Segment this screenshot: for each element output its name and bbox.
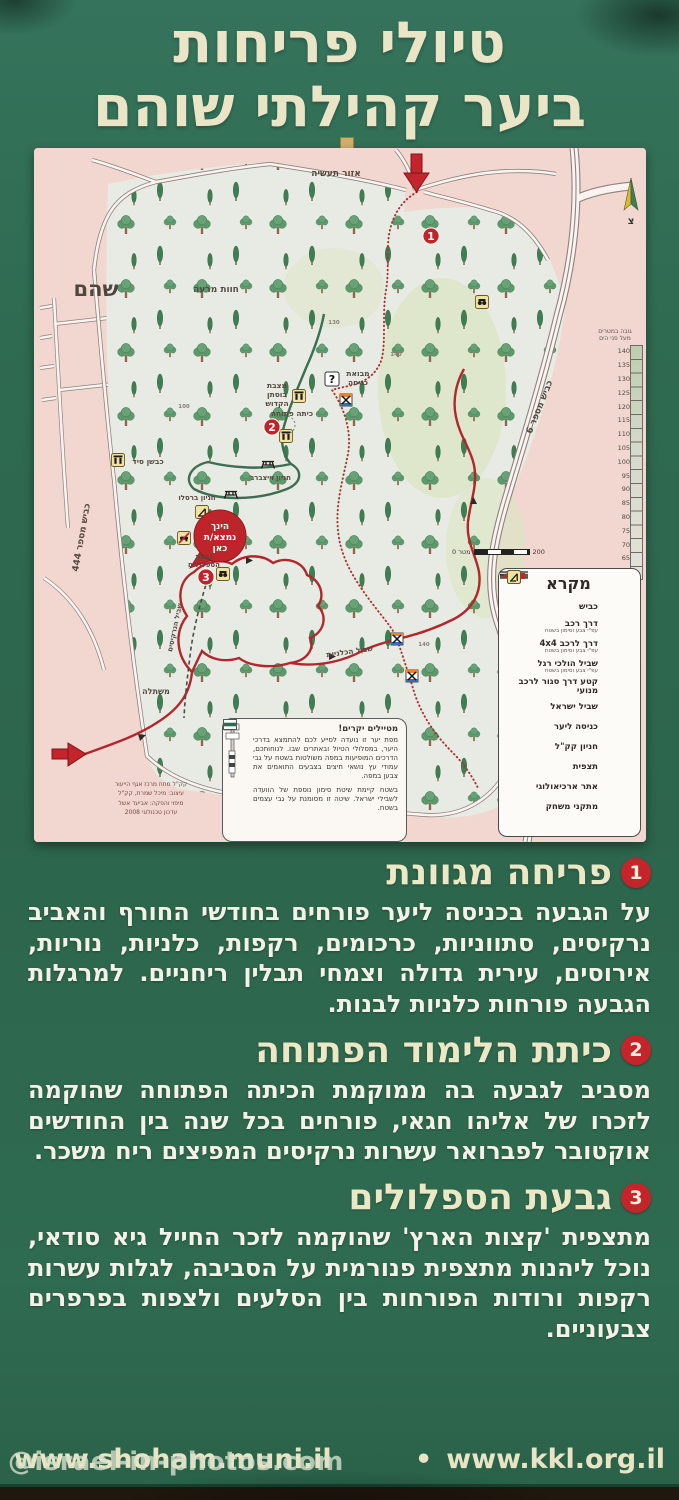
svg-text:מבואת: מבואת [346, 369, 369, 378]
israel-trail-marker-icon [406, 670, 418, 682]
map-legend: מקרא כביש דרך רכבעפ"י צבע וסימון בשטח 4x… [498, 568, 641, 837]
footer-left: www.shoham.muni.il @israel-in-photos.com [14, 1444, 332, 1475]
legend-item: חניון קק"ל [504, 737, 633, 757]
info-box-paragraph: בשטח קיימת שיטת סימון נוספת של הוועדה לש… [253, 786, 398, 813]
elevation-tick-labels: 1401351301251201151101051009590858075706… [615, 345, 630, 580]
svg-text:מצבת: מצבת [267, 381, 287, 390]
section-1: 1 פריחה מגוונת על הגבעה בכניסה ליער פורח… [28, 852, 651, 1020]
legend-item: 4x4 דרך לרכב 4x4עפ"י צבע וסימון בשטח [504, 637, 633, 657]
svg-text:?: ? [329, 373, 335, 386]
legend-item: תצפית [504, 757, 633, 777]
section-body: על הגבעה בכניסה ליער פורחים בחודשי החורף… [28, 897, 651, 1020]
section-title: גבעת הספלולים [348, 1177, 612, 1218]
trail-blaze-icon [223, 719, 237, 730]
lookout-icon [217, 568, 230, 581]
weinberg-picnic-label: חניון וייצברג [251, 474, 291, 482]
section-title: פריחה מגוונת [386, 852, 612, 893]
industrial-zone-label: אזור תעשיה [311, 169, 361, 179]
question-info-icon: ? [325, 372, 339, 386]
legend-item: שביל ישראל [504, 697, 633, 717]
svg-text:100: 100 [178, 404, 190, 410]
legend-item: מתקני משחק [504, 797, 633, 817]
shoham-muni-url: www.shoham.muni.il [14, 1444, 332, 1475]
svg-text:כאן: כאן [213, 544, 228, 554]
hikers-info-box: מטיילים יקרים! מפת יער זו נועדה לסייע לכ… [222, 718, 407, 842]
compass-label: צ [628, 216, 635, 227]
elevation-scale: גובה במטרים מעל פני הים 1401351301251201… [587, 328, 643, 580]
description-sections: 1 פריחה מגוונת על הגבעה בכניסה ליער פורח… [28, 852, 651, 1355]
map-credits: קק"ל מחוז מרכז אגף הייעורעיצוב: מיכל שמר… [90, 780, 212, 817]
info-box-paragraph: מפת יער זו נועדה לסייע לכם להתמצא בדרכי … [253, 736, 398, 781]
title-line2: ביער קהילתי שוהם [0, 76, 679, 140]
title-line1: טיולי פריחות [0, 12, 679, 76]
svg-text:גבעת: גבעת [196, 553, 213, 561]
info-box-title: מטיילים יקרים! [253, 724, 398, 734]
svg-text:הספלולים: הספלולים [188, 561, 220, 569]
grazing-farm-label: חוות מרעה [193, 285, 239, 295]
elevation-bar [630, 345, 643, 580]
lookout-icon [476, 296, 489, 309]
svg-text:בוסתן: בוסתן [267, 390, 287, 399]
legend-item: דרך רכבעפ"י צבע וסימון בשטח [504, 617, 633, 637]
legend-item: כביש [504, 597, 633, 617]
archaeology-icon [112, 454, 125, 467]
footer-right: • www.kkl.org.il [415, 1444, 665, 1475]
footer-bar: www.shoham.muni.il @israel-in-photos.com… [14, 1438, 665, 1480]
section-3: 3 גבעת הספלולים מתצפית 'קצות הארץ' שהוקמ… [28, 1177, 651, 1345]
svg-text:כניסה: כניסה [348, 378, 368, 387]
svg-text:נמצא/ת: נמצא/ת [204, 533, 236, 543]
section-number-badge: 3 [621, 1183, 651, 1213]
open-classroom-label: כיתה פתוחה [271, 409, 313, 418]
town-label: שהם [74, 277, 119, 301]
section-body: מתצפית 'קצות הארץ' שהוקמה לזכר החייל גיא… [28, 1222, 651, 1345]
svg-text:1: 1 [427, 230, 435, 243]
map-marker-2: 2 [264, 419, 280, 435]
photo-bottom-edge [0, 1487, 679, 1500]
forest-trail-sign: טיולי פריחות ביער קהילתי שוהם [0, 0, 679, 1500]
kkl-url: www.kkl.org.il [446, 1444, 665, 1475]
footer-separator: • [415, 1444, 432, 1475]
sign-title: טיולי פריחות ביער קהילתי שוהם [0, 12, 679, 140]
svg-text:140: 140 [390, 352, 402, 358]
legend-item: קטע דרך סגור לרכב מנועי [504, 677, 633, 697]
svg-text:3: 3 [202, 571, 210, 584]
breslov-picnic-label: חניון ברסלו [178, 494, 215, 502]
section-body: מסביב לגבעה בה ממוקמת הכיתה הפתוחה שהוקמ… [28, 1075, 651, 1167]
nursery-label: משתלה [142, 687, 170, 696]
archaeology-icon [293, 390, 306, 403]
map-scale-bar: 0 מטר 200 [452, 548, 545, 556]
svg-text:130: 130 [328, 320, 340, 326]
svg-text:140: 140 [418, 642, 430, 648]
svg-text:הינך: הינך [211, 522, 229, 532]
scale-bar-graphic [474, 549, 530, 555]
israel-trail-marker-icon [391, 633, 403, 645]
map-marker-3: 3 [198, 569, 214, 585]
closed-road-icon [178, 532, 191, 545]
legend-item: אתר ארכיאולוגי [504, 777, 633, 797]
section-2: 2 כיתת הלימוד הפתוחה מסביב לגבעה בה ממוק… [28, 1030, 651, 1167]
svg-text:2: 2 [268, 421, 276, 434]
archaeology-icon [280, 430, 293, 443]
section-number-badge: 1 [621, 858, 651, 888]
svg-text:הקדוש: הקדוש [265, 399, 288, 408]
elevation-title: גובה במטרים [587, 328, 643, 335]
trail-map: צ ? 1 2 3 [34, 148, 646, 842]
section-number-badge: 2 [621, 1035, 651, 1065]
israel-trail-marker-icon [340, 394, 352, 406]
section-title: כיתת הלימוד הפתוחה [255, 1030, 612, 1071]
map-marker-1: 1 [423, 228, 439, 244]
legend-item: שביל הולכי רגלעפ"י צבע וסימון בשטח [504, 657, 633, 677]
legend-item: כניסה ליער [504, 717, 633, 737]
lime-kiln-label: כבשן סיד [132, 457, 163, 466]
